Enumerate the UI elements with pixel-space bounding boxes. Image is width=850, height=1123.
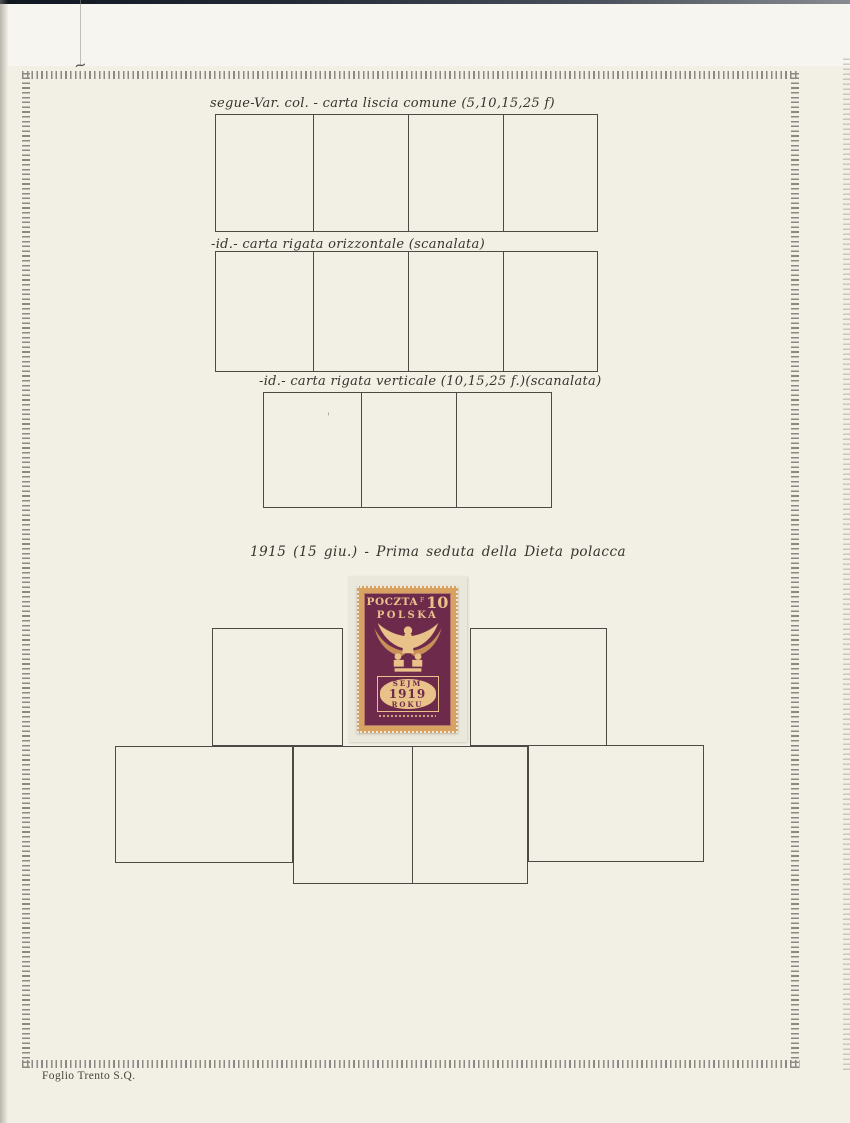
scan-edge-strip (0, 0, 850, 4)
adjacent-sheet-border (843, 56, 850, 1070)
page-border-left (22, 71, 30, 1068)
caption-row2: -id.- carta rigata orizzontale (scanalat… (211, 237, 485, 252)
postage-stamp[interactable]: POCZTA F 10 POLSKA SEJM 1919 (357, 586, 458, 733)
caption-row1: segue-Var. col. - carta liscia comune (5… (210, 96, 555, 111)
stamp-tablet-year: 1919 (382, 688, 434, 700)
page-border-top (22, 71, 798, 79)
cell-divider (408, 252, 409, 371)
stamp-header: POCZTA F 10 (367, 597, 449, 610)
caption-row3: -id.- carta rigata verticale (10,15,25 f… (259, 374, 601, 389)
page-border-right (791, 71, 799, 1068)
album-page: ~ ' segue-Var. col. - carta liscia comun… (0, 0, 850, 1123)
stamp-box-bottom-left (115, 746, 293, 863)
cell-divider (456, 393, 457, 507)
cell-divider (313, 252, 314, 371)
stamp-tablet-oval: SEJM 1919 ROKU (380, 679, 436, 709)
stamp-design: POCZTA F 10 POLSKA SEJM 1919 (364, 593, 451, 726)
cell-divider (503, 115, 504, 231)
eagle-emblem-icon (366, 623, 450, 675)
cell-divider (361, 393, 362, 507)
cell-divider (313, 115, 314, 231)
stamp-box-row2 (215, 251, 598, 372)
stamp-box-row3 (263, 392, 552, 508)
stamp-box-row1 (215, 114, 598, 232)
stamp-box-bottom-middle (293, 746, 528, 884)
sheet-maker-label: Foglio Trento S.Q. (42, 1070, 135, 1082)
cell-divider (503, 252, 504, 371)
stamp-tablet-line1: SEJM (382, 680, 434, 687)
stamp-imprint-line (379, 715, 435, 717)
caption-stamp-row: 1915 (15 giu.) - Prima seduta della Diet… (250, 544, 626, 560)
stamp-tablet-line3: ROKU (382, 701, 434, 708)
stamp-box-mid-left (212, 628, 343, 746)
stamp-box-mid-right (470, 628, 607, 746)
scan-left-shadow (0, 0, 8, 1123)
stamp-currency-letter: F (420, 598, 424, 604)
stamp-box-bottom-right (528, 745, 704, 862)
scan-top-margin (8, 4, 850, 66)
stamp-country-word: POCZTA (367, 597, 418, 608)
cell-divider (408, 115, 409, 231)
page-border-bottom (22, 1060, 800, 1068)
stamp-tablet: SEJM 1919 ROKU (377, 676, 439, 712)
stamp-denomination: 10 (426, 597, 448, 610)
stamp-country-word2: POLSKA (377, 610, 439, 622)
cell-divider (412, 747, 413, 883)
